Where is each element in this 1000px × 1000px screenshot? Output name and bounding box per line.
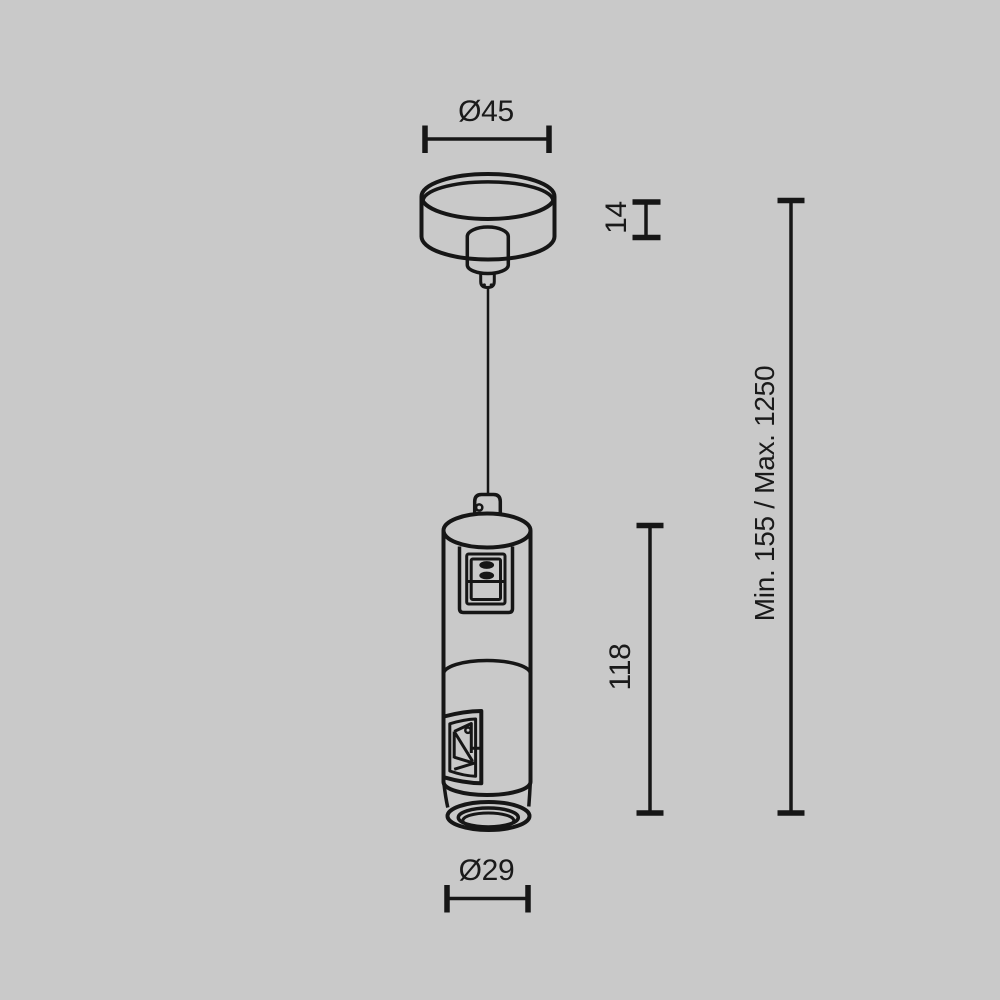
body-top-ellipse bbox=[444, 514, 531, 548]
drawing-canvas: Ø45 14 118 Min. 155 / Max. 1250 Ø29 bbox=[0, 0, 1000, 1000]
nipple-dot-left bbox=[483, 283, 486, 286]
canopy-drawing bbox=[422, 174, 555, 288]
dim-body-height: 118 bbox=[604, 526, 664, 814]
dim-canopy-height: 14 bbox=[600, 201, 661, 237]
switch-panel bbox=[460, 547, 513, 613]
fixture-body-drawing bbox=[444, 495, 531, 831]
dim-label-body-diameter: Ø29 bbox=[459, 854, 515, 887]
switch-dot-top bbox=[479, 561, 494, 569]
dim-label-body-height: 118 bbox=[604, 644, 637, 691]
canopy-chamfer-arc bbox=[423, 182, 553, 201]
strain-relief-bottom-arc bbox=[467, 265, 508, 273]
nipple-dot-right bbox=[490, 283, 493, 286]
dim-suspension-range: Min. 155 / Max. 1250 bbox=[749, 201, 805, 814]
strain-relief-top-arc bbox=[467, 227, 508, 237]
window-screw-icon bbox=[465, 728, 470, 733]
dim-label-canopy-diameter: Ø45 bbox=[458, 95, 514, 128]
switch-dot-bottom bbox=[479, 572, 494, 580]
body-seam-arc bbox=[444, 661, 531, 675]
dim-body-diameter: Ø29 bbox=[447, 854, 528, 913]
grip-set-screw-icon bbox=[476, 504, 482, 510]
dim-canopy-diameter: Ø45 bbox=[425, 95, 549, 153]
dim-label-canopy-height: 14 bbox=[600, 201, 633, 234]
technical-drawing: Ø45 14 118 Min. 155 / Max. 1250 Ø29 bbox=[0, 0, 1000, 1000]
canopy-bottom-arc bbox=[422, 237, 555, 260]
adjustment-window bbox=[444, 711, 481, 783]
dim-label-suspension-range: Min. 155 / Max. 1250 bbox=[749, 366, 780, 621]
body-bottom-arc bbox=[444, 782, 531, 795]
canopy-side-walls bbox=[422, 197, 555, 237]
